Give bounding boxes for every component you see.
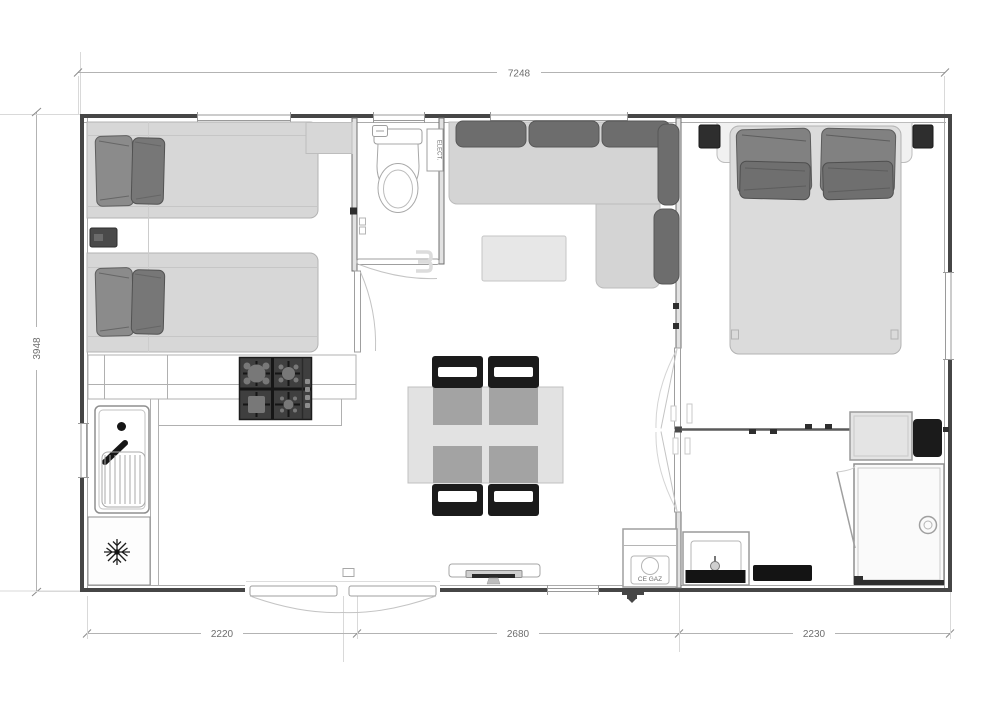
svg-text:CE GAZ: CE GAZ <box>638 576 662 583</box>
svg-text:3948: 3948 <box>32 337 43 360</box>
svg-text:2230: 2230 <box>803 629 826 640</box>
svg-text:2220: 2220 <box>211 629 234 640</box>
svg-text:7248: 7248 <box>508 69 531 80</box>
svg-text:ELECT.: ELECT. <box>436 140 442 161</box>
svg-text:2680: 2680 <box>507 629 530 640</box>
